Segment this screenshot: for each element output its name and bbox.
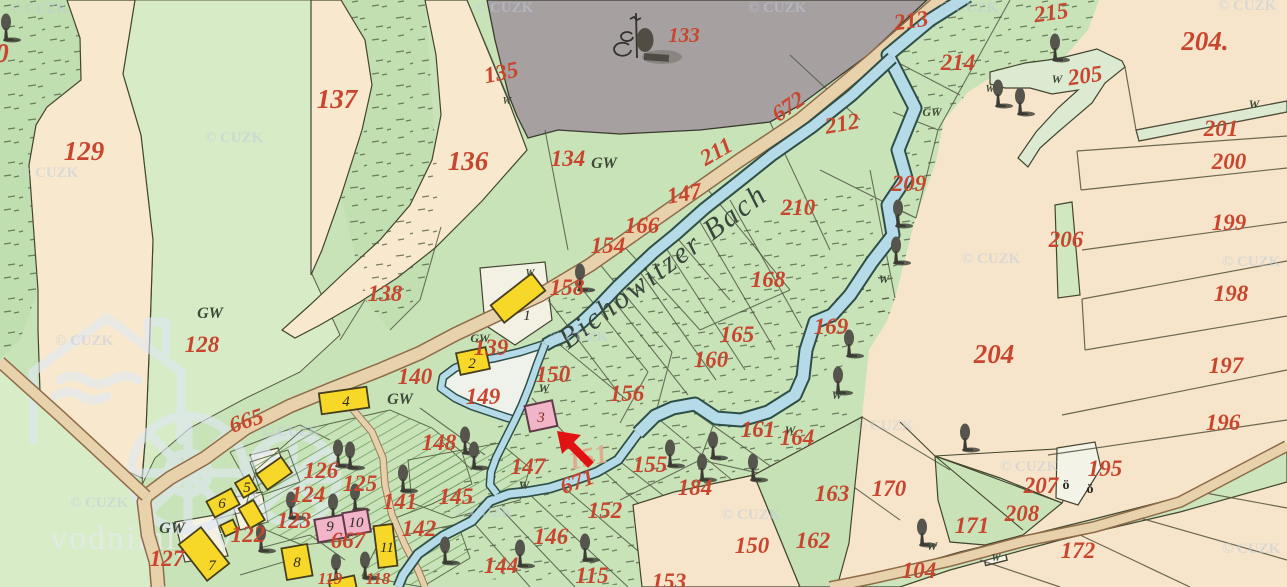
svg-text:172: 172: [1061, 538, 1096, 563]
svg-text:© CUZK: © CUZK: [722, 507, 781, 523]
svg-text:153: 153: [652, 569, 687, 587]
svg-text:149: 149: [466, 384, 501, 409]
svg-text:118: 118: [366, 569, 391, 587]
svg-text:ö: ö: [1087, 482, 1094, 497]
svg-text:147: 147: [511, 454, 547, 479]
svg-text:© CUZK: © CUZK: [10, 1, 69, 17]
svg-text:W: W: [785, 423, 797, 437]
svg-text:© CUZK: © CUZK: [748, 0, 807, 16]
svg-text:137: 137: [317, 84, 359, 114]
svg-text:© CUZK: © CUZK: [550, 329, 609, 345]
svg-text:146: 146: [534, 524, 569, 549]
svg-text:205: 205: [1065, 61, 1104, 91]
svg-text:© CUZK: © CUZK: [455, 505, 514, 521]
svg-text:214: 214: [940, 50, 976, 75]
svg-text:W: W: [992, 553, 1002, 564]
svg-text:150: 150: [735, 533, 770, 558]
svg-text:201: 201: [1203, 116, 1239, 141]
svg-text:W: W: [1249, 97, 1261, 111]
svg-text:W: W: [526, 268, 536, 279]
svg-text:© CUZK: © CUZK: [475, 0, 534, 16]
svg-text:W: W: [519, 478, 531, 492]
svg-text:© CUZK: © CUZK: [262, 424, 321, 440]
svg-text:W: W: [539, 381, 551, 395]
svg-text:GW: GW: [470, 331, 491, 345]
svg-text:163: 163: [815, 481, 850, 506]
svg-text:125: 125: [343, 471, 378, 496]
svg-text:GW: GW: [591, 155, 619, 172]
svg-text:0: 0: [0, 38, 9, 68]
svg-text:208: 208: [1004, 501, 1040, 526]
svg-text:127: 127: [150, 546, 186, 571]
svg-text:1: 1: [523, 308, 531, 324]
svg-text:198: 198: [1214, 281, 1249, 306]
svg-text:© CUZK: © CUZK: [205, 130, 264, 146]
svg-text:200: 200: [1211, 149, 1247, 174]
svg-text:209: 209: [891, 171, 927, 196]
svg-text:204: 204: [973, 339, 1015, 369]
svg-text:W: W: [927, 539, 939, 553]
svg-text:152: 152: [588, 498, 623, 523]
svg-text:154: 154: [591, 233, 626, 258]
svg-text:11: 11: [380, 540, 394, 556]
svg-text:126: 126: [304, 458, 339, 483]
svg-text:119: 119: [318, 569, 343, 587]
svg-text:210: 210: [780, 195, 816, 220]
svg-text:160: 160: [694, 347, 729, 372]
svg-text:197: 197: [1209, 353, 1245, 378]
svg-text:W: W: [1052, 72, 1064, 86]
svg-text:156: 156: [610, 381, 645, 406]
svg-text:3: 3: [536, 410, 545, 426]
svg-text:129: 129: [64, 136, 105, 166]
svg-text:ö: ö: [1063, 478, 1070, 493]
svg-text:166: 166: [625, 213, 660, 238]
svg-text:155: 155: [633, 452, 668, 477]
svg-text:133: 133: [668, 23, 700, 47]
svg-text:134: 134: [551, 146, 586, 171]
svg-text:148: 148: [422, 430, 457, 455]
svg-text:184: 184: [678, 475, 713, 500]
svg-text:138: 138: [368, 281, 403, 306]
svg-text:195: 195: [1088, 456, 1123, 481]
svg-text:© CUZK: © CUZK: [940, 0, 999, 16]
svg-text:123: 123: [277, 508, 312, 533]
svg-text:168: 168: [751, 267, 786, 292]
svg-text:104: 104: [902, 558, 937, 583]
svg-text:170: 170: [872, 476, 907, 501]
svg-text:162: 162: [796, 528, 831, 553]
svg-text:W: W: [503, 96, 513, 107]
svg-text:8: 8: [293, 555, 301, 571]
svg-text:196: 196: [1206, 410, 1241, 435]
svg-text:© CUZK: © CUZK: [855, 418, 914, 434]
svg-text:141: 141: [383, 489, 418, 514]
svg-text:W: W: [832, 388, 844, 402]
svg-text:© CUZK: © CUZK: [55, 333, 114, 349]
svg-text:© CUZK: © CUZK: [962, 251, 1021, 267]
svg-text:© CUZK: © CUZK: [1000, 459, 1059, 475]
svg-text:204.: 204.: [1180, 26, 1228, 56]
svg-text:158: 158: [550, 275, 585, 300]
svg-text:140: 140: [398, 364, 433, 389]
svg-text:4: 4: [342, 394, 350, 410]
svg-text:© CUZK: © CUZK: [70, 495, 129, 511]
svg-text:199: 199: [1212, 210, 1247, 235]
svg-text:5: 5: [243, 480, 251, 496]
svg-text:© CUZK: © CUZK: [1222, 541, 1281, 557]
svg-text:667: 667: [331, 528, 367, 553]
svg-text:W: W: [986, 84, 996, 95]
svg-text:6: 6: [218, 496, 226, 512]
svg-text:144: 144: [484, 553, 519, 578]
svg-text:© CUZK: © CUZK: [20, 165, 79, 181]
svg-text:© CUZK: © CUZK: [1222, 254, 1281, 270]
svg-text:© CUZK: © CUZK: [1218, 0, 1277, 14]
svg-text:169: 169: [814, 314, 849, 339]
svg-text:W: W: [879, 272, 891, 286]
svg-text:207: 207: [1023, 473, 1060, 498]
svg-text:GW: GW: [159, 520, 187, 537]
svg-text:122: 122: [231, 522, 266, 547]
svg-text:115: 115: [575, 563, 608, 587]
svg-text:136: 136: [448, 146, 489, 176]
svg-text:GW: GW: [922, 105, 943, 119]
svg-text:213: 213: [891, 6, 930, 36]
svg-text:165: 165: [720, 322, 755, 347]
svg-text:161: 161: [741, 417, 776, 442]
svg-text:GW: GW: [197, 305, 225, 322]
svg-text:142: 142: [402, 516, 437, 541]
svg-text:128: 128: [185, 332, 220, 357]
svg-text:GW: GW: [387, 391, 415, 408]
svg-text:171: 171: [955, 513, 990, 538]
svg-text:124: 124: [291, 482, 326, 507]
svg-text:206: 206: [1048, 227, 1084, 252]
